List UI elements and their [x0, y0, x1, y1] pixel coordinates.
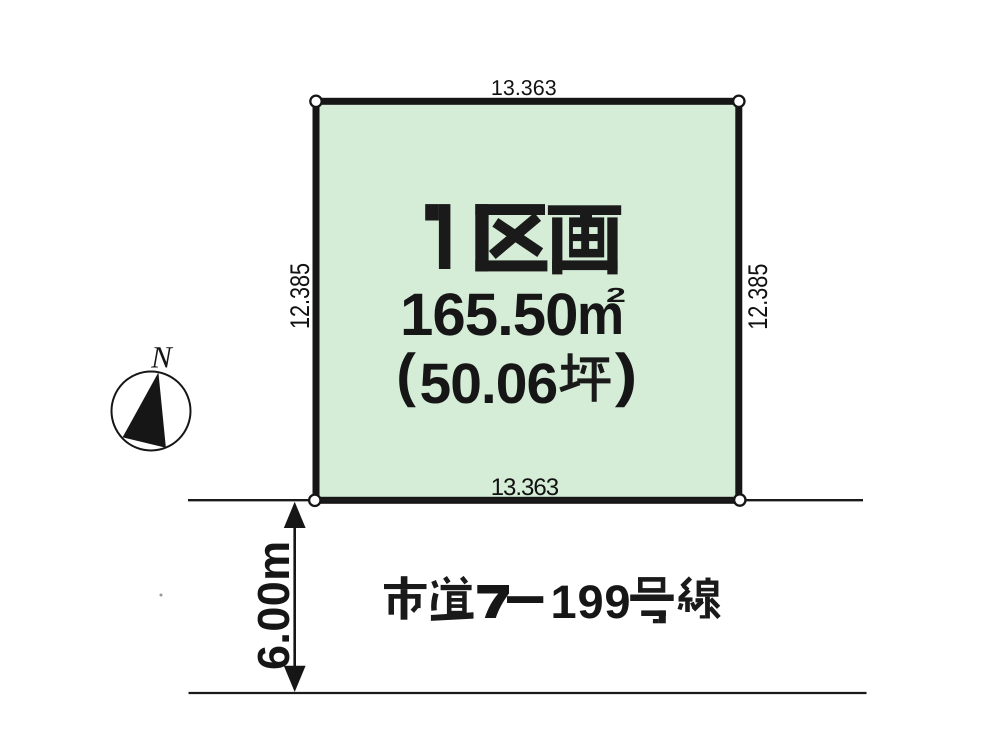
svg-text:165.50: 165.50	[400, 281, 578, 348]
svg-text:2: 2	[606, 284, 626, 307]
svg-text:N: N	[150, 340, 174, 375]
svg-text:(: (	[396, 342, 416, 408]
svg-text:): )	[615, 342, 637, 408]
svg-text:6.00m: 6.00m	[248, 540, 299, 670]
svg-text:12.385: 12.385	[743, 264, 773, 330]
svg-text:199: 199	[551, 575, 632, 628]
svg-text:13.363: 13.363	[491, 474, 559, 501]
svg-text:12.385: 12.385	[285, 263, 315, 329]
svg-text:50.06: 50.06	[420, 352, 558, 416]
svg-text:13.363: 13.363	[491, 76, 557, 100]
